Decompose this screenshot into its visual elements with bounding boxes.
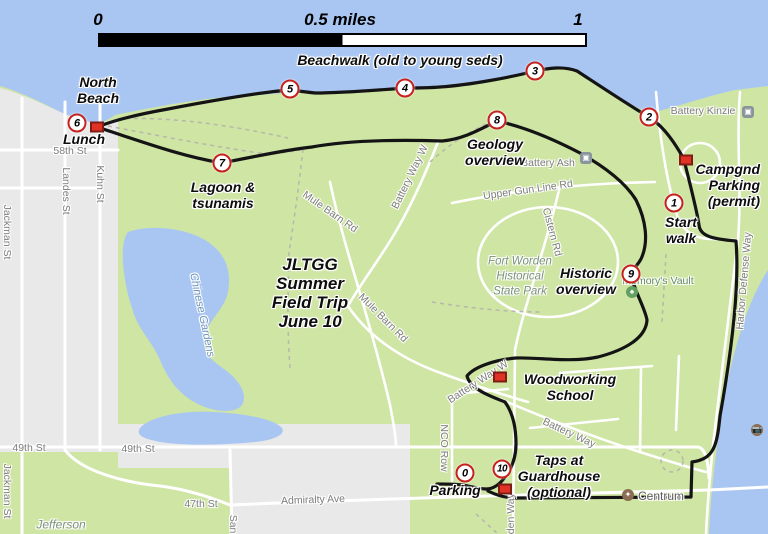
waypoint-7-marker[interactable]: 7 <box>213 154 232 173</box>
waypoint-9-marker[interactable]: 9 <box>622 265 641 284</box>
marker-guardhouse[interactable] <box>498 484 512 495</box>
map-canvas[interactable]: 0 0.5 miles 1 58th St Kuhn St Landes St … <box>0 0 768 534</box>
waypoint-8-marker[interactable]: 8 <box>488 111 507 130</box>
marker-campground-parking[interactable] <box>679 155 693 166</box>
battery-kinzie-icon[interactable]: ▣ <box>742 106 754 118</box>
battery-ash-icon[interactable]: ▣ <box>580 152 592 164</box>
centrum-icon[interactable]: ✦ <box>622 489 634 501</box>
waypoint-10-marker[interactable]: 10 <box>493 460 512 479</box>
waypoint-1-marker[interactable]: 1 <box>665 194 684 213</box>
marker-lunch-stop[interactable] <box>90 122 104 133</box>
waypoint-0-marker[interactable]: 0 <box>456 464 475 483</box>
waypoint-6-marker[interactable]: 6 <box>68 114 87 133</box>
waypoint-4-marker[interactable]: 4 <box>396 79 415 98</box>
memorys-vault-tree-icon[interactable]: ♠ <box>626 286 638 298</box>
basemap <box>0 0 768 534</box>
waypoint-3-marker[interactable]: 3 <box>526 62 545 81</box>
attraction-icon[interactable]: 📷 <box>751 424 763 436</box>
waypoint-5-marker[interactable]: 5 <box>281 80 300 99</box>
waypoint-2-marker[interactable]: 2 <box>640 108 659 127</box>
marker-woodworking-school[interactable] <box>493 372 507 383</box>
